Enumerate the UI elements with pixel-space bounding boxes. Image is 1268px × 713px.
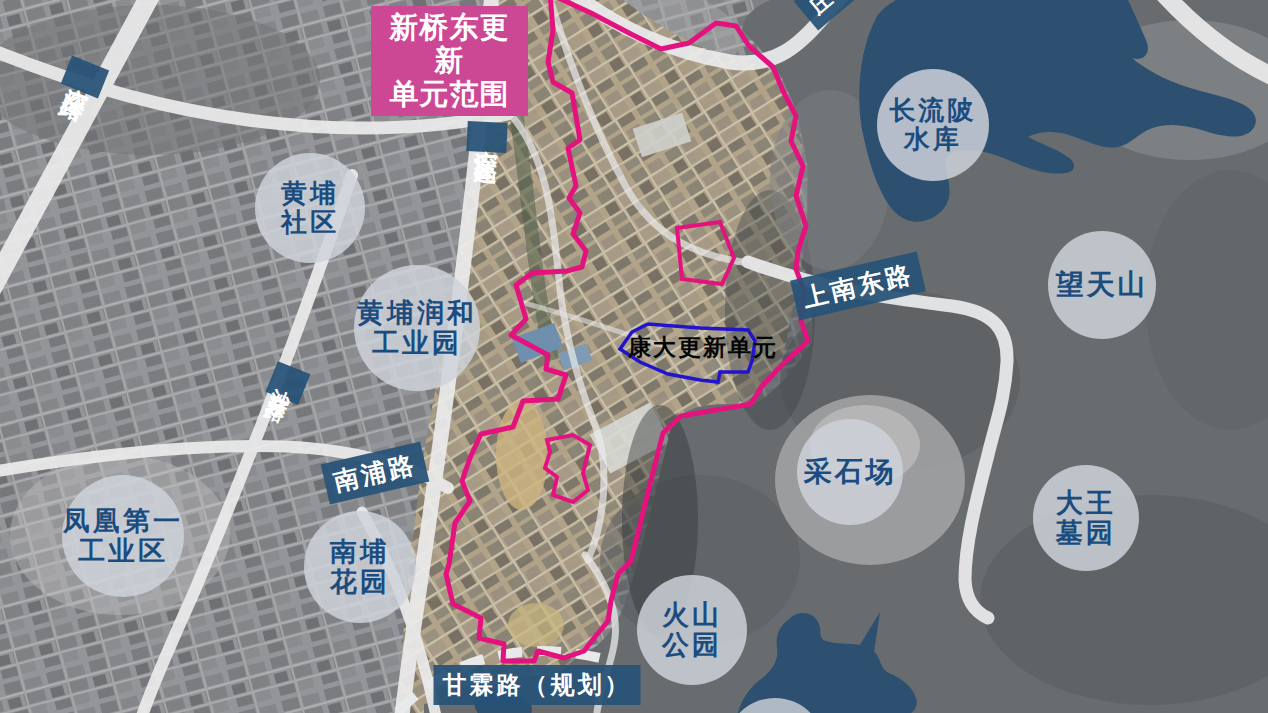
area-label-wangtianshan: 望天山 xyxy=(1048,231,1156,339)
area-label-line: 黄埔 xyxy=(281,179,339,208)
construction-sand xyxy=(508,603,564,647)
area-label-changliubei-reservoir: 长流陂 水库 xyxy=(877,69,989,181)
area-label-line: 凤凰第一 xyxy=(63,506,183,536)
area-label-line: 工业园 xyxy=(372,328,462,358)
map-canvas: 黄埔 社区 黄埔润和 工业园 长流陂 水库 望天山 采石场 大王 墓园 凤凰第一… xyxy=(0,0,1268,713)
area-label-line: 黄埔润和 xyxy=(357,298,477,328)
road-label-ganlin-planned: 甘霖路（规划） xyxy=(434,665,641,705)
area-label-line: 花园 xyxy=(330,567,390,597)
area-label-line: 长流陂 xyxy=(890,96,977,125)
renewal-unit-badge: 新桥东更新 单元范围 xyxy=(371,6,528,116)
construction-sand xyxy=(496,400,548,510)
kangda-unit-label: 康大更新单元 xyxy=(628,332,778,363)
area-label-dawang-cemetery: 大王 墓园 xyxy=(1033,465,1139,571)
area-label-huangpu-runhe-park: 黄埔润和 工业园 xyxy=(354,265,480,391)
area-label-line: 望天山 xyxy=(1056,269,1149,300)
road-label-guangshen-expressway: 广深高速 xyxy=(466,121,508,153)
area-label-line: 南埔 xyxy=(330,537,390,567)
area-label-nanpu-garden: 南埔 花园 xyxy=(304,511,416,623)
area-label-line: 大王 xyxy=(1056,488,1116,518)
area-label-huoshan-park: 火山 公园 xyxy=(637,575,747,685)
badge-line: 新桥东更新 xyxy=(375,11,524,78)
area-label-fenghuang-first-industrial: 凤凰第一 工业区 xyxy=(62,475,184,597)
area-label-line: 公园 xyxy=(662,630,722,660)
badge-line: 单元范围 xyxy=(375,78,524,111)
area-label-line: 墓园 xyxy=(1056,518,1116,548)
area-label-quarry: 采石场 xyxy=(797,419,903,525)
area-label-huangpu-community: 黄埔 社区 xyxy=(255,153,365,263)
area-label-line: 水库 xyxy=(904,125,962,154)
area-label-line: 采石场 xyxy=(804,456,897,487)
area-label-line: 火山 xyxy=(662,600,722,630)
area-label-line: 社区 xyxy=(281,208,339,237)
area-label-line: 工业区 xyxy=(78,536,168,566)
